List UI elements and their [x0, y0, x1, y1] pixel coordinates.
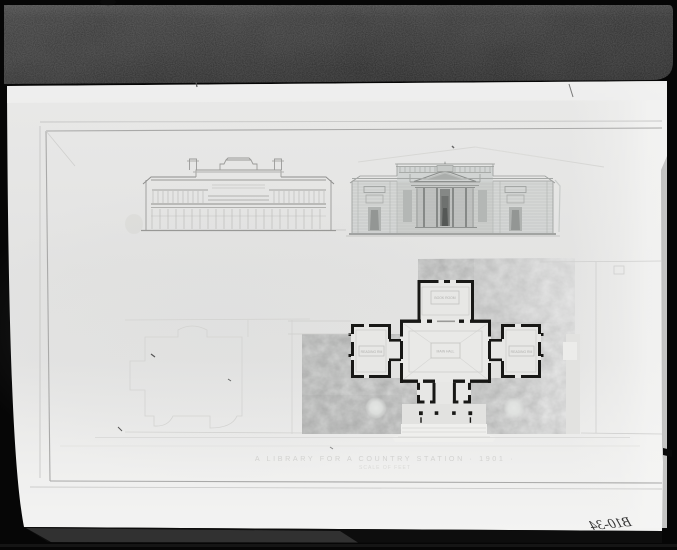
- svg-text:SCALE OF FEET: SCALE OF FEET: [359, 465, 411, 471]
- svg-text:READING RM: READING RM: [361, 350, 383, 354]
- svg-text:A LIBRARY FOR A COUNTRY STATIO: A LIBRARY FOR A COUNTRY STATION · 1901 ·: [255, 454, 515, 463]
- svg-text:MAIN HALL: MAIN HALL: [437, 350, 455, 354]
- svg-text:READING RM: READING RM: [511, 350, 533, 354]
- svg-text:BOOK ROOM: BOOK ROOM: [434, 296, 455, 300]
